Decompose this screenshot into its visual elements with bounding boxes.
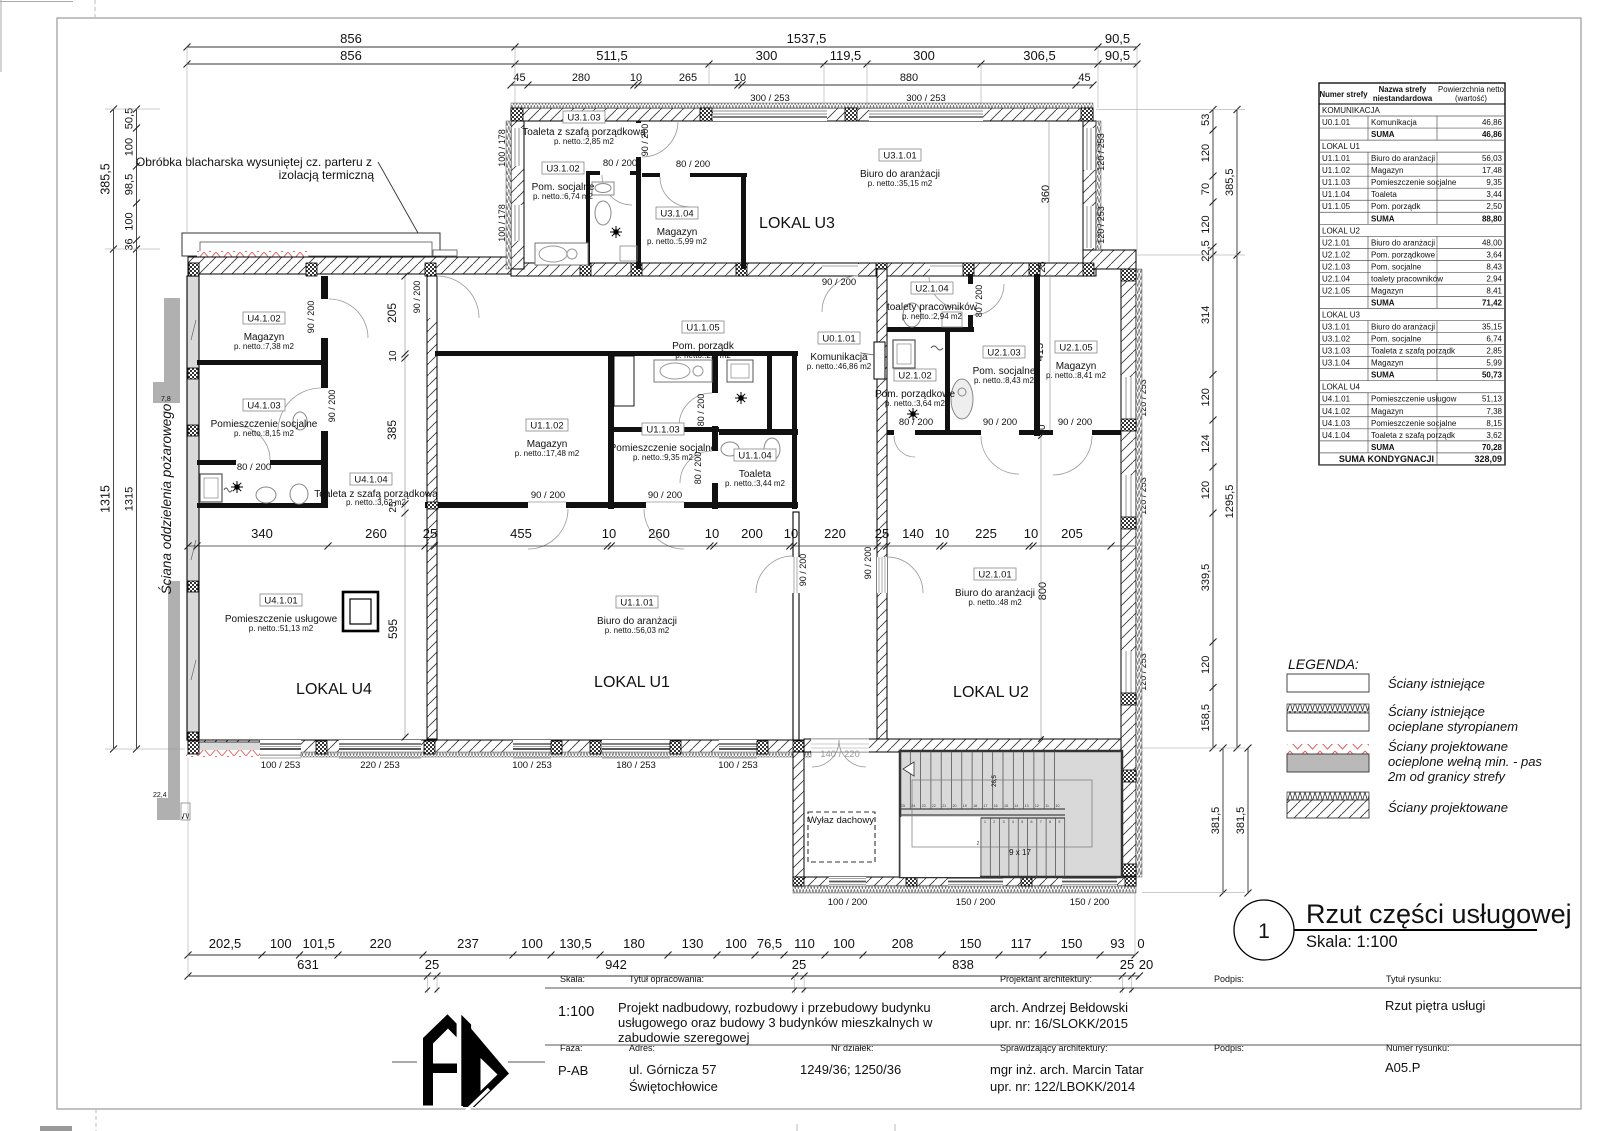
svg-text:119,5: 119,5 [830, 48, 862, 63]
svg-text:SUMA KONDYGNACJI: SUMA KONDYGNACJI [1339, 454, 1434, 464]
svg-text:90 / 200: 90 / 200 [983, 417, 1017, 428]
svg-text:306,5: 306,5 [1023, 48, 1056, 63]
svg-text:511,5: 511,5 [596, 48, 628, 63]
svg-text:25: 25 [875, 526, 889, 541]
svg-text:150 / 200: 150 / 200 [1070, 897, 1110, 908]
svg-text:1315: 1315 [124, 487, 136, 511]
svg-text:381,5: 381,5 [1235, 807, 1247, 835]
svg-text:U3.1.03: U3.1.03 [567, 113, 600, 124]
svg-text:22: 22 [932, 804, 936, 808]
svg-text:46,86: 46,86 [1482, 130, 1503, 139]
svg-text:6: 6 [1031, 820, 1033, 824]
svg-text:Nr działek:: Nr działek: [831, 1043, 874, 1053]
svg-text:140 / 220: 140 / 220 [820, 749, 860, 760]
svg-text:1249/36; 1250/36: 1249/36; 1250/36 [800, 1062, 901, 1077]
svg-text:10: 10 [630, 72, 642, 84]
svg-text:120: 120 [1200, 144, 1212, 162]
svg-text:p. netto.:48 m2: p. netto.:48 m2 [968, 598, 1022, 607]
svg-text:toalety pracowników: toalety pracowników [1371, 274, 1443, 283]
svg-text:90 / 200: 90 / 200 [306, 301, 316, 334]
svg-text:Podpis:: Podpis: [1214, 1043, 1244, 1053]
svg-text:15: 15 [1004, 804, 1008, 808]
svg-text:265: 265 [679, 72, 697, 84]
svg-text:20: 20 [1139, 957, 1153, 972]
svg-text:158,5: 158,5 [1200, 704, 1212, 732]
svg-text:U2.1.04: U2.1.04 [915, 284, 948, 295]
svg-text:3: 3 [1003, 820, 1005, 824]
svg-text:381,5: 381,5 [1210, 807, 1222, 835]
svg-text:p. netto.:2,5 m2: p. netto.:2,5 m2 [675, 351, 731, 360]
svg-text:U1.1.01: U1.1.01 [620, 598, 653, 609]
svg-text:Pom. porządk: Pom. porządk [1371, 202, 1421, 211]
svg-text:U2.1.01: U2.1.01 [1322, 238, 1351, 247]
svg-text:Pomieszczenie usługow: Pomieszczenie usługow [1371, 395, 1457, 404]
svg-text:U4.1.04: U4.1.04 [1322, 431, 1351, 440]
svg-text:3,64: 3,64 [1486, 250, 1502, 259]
svg-text:Projekt nadbudowy, rozbudowy i: Projekt nadbudowy, rozbudowy i przebudow… [618, 1000, 931, 1015]
svg-text:120: 120 [1200, 481, 1212, 499]
svg-text:U2.1.03: U2.1.03 [987, 348, 1020, 359]
svg-text:71,42: 71,42 [1482, 298, 1503, 307]
svg-text:2: 2 [993, 820, 995, 824]
svg-text:9,35: 9,35 [1486, 178, 1502, 187]
svg-text:3,62: 3,62 [1486, 431, 1502, 440]
svg-text:KOMUNIKACJA: KOMUNIKACJA [1322, 106, 1380, 115]
svg-text:360: 360 [1040, 185, 1052, 203]
svg-text:SUMA: SUMA [1371, 443, 1395, 452]
svg-text:p. netto.:3,44 m2: p. netto.:3,44 m2 [725, 479, 786, 488]
svg-text:25: 25 [1037, 261, 1048, 273]
svg-text:200: 200 [741, 526, 763, 541]
svg-text:856: 856 [340, 31, 362, 46]
svg-text:U1.1.02: U1.1.02 [530, 421, 563, 432]
svg-text:25: 25 [1120, 957, 1134, 972]
svg-text:U3.1.01: U3.1.01 [883, 151, 916, 162]
svg-text:U1.1.04: U1.1.04 [738, 451, 771, 462]
svg-text:208: 208 [892, 936, 914, 951]
svg-text:90 / 200: 90 / 200 [648, 490, 682, 501]
svg-text:385: 385 [385, 420, 399, 440]
svg-text:100 / 253: 100 / 253 [512, 760, 552, 771]
svg-text:205: 205 [385, 303, 399, 323]
svg-text:10: 10 [734, 72, 746, 84]
svg-text:220: 220 [824, 526, 846, 541]
svg-text:838: 838 [952, 957, 974, 972]
svg-text:90 / 200: 90 / 200 [531, 490, 565, 501]
svg-text:Magazyn: Magazyn [1371, 166, 1403, 175]
svg-text:U4.1.02: U4.1.02 [1322, 407, 1351, 416]
svg-text:9: 9 [1058, 820, 1060, 824]
svg-text:856: 856 [340, 48, 362, 63]
svg-text:Biuro do aranżacji: Biuro do aranżacji [1371, 154, 1435, 163]
svg-text:2: 2 [977, 841, 980, 847]
svg-text:7,8: 7,8 [161, 396, 171, 403]
svg-text:80 / 200: 80 / 200 [237, 462, 271, 473]
svg-text:90 / 200: 90 / 200 [412, 281, 422, 314]
svg-text:(wartość): (wartość) [1455, 94, 1487, 103]
svg-text:100: 100 [124, 138, 136, 156]
svg-text:10: 10 [388, 350, 399, 362]
svg-text:U3.1.02: U3.1.02 [546, 164, 579, 175]
svg-text:80 / 200: 80 / 200 [974, 285, 984, 318]
svg-text:300 / 253: 300 / 253 [750, 93, 790, 104]
svg-text:22,5: 22,5 [1200, 240, 1212, 261]
svg-text:70,28: 70,28 [1482, 443, 1503, 452]
svg-text:120: 120 [1200, 656, 1212, 674]
svg-text:117: 117 [1011, 936, 1032, 951]
svg-text:p. netto.:9,35 m2: p. netto.:9,35 m2 [633, 453, 694, 462]
svg-text:2,50: 2,50 [1486, 202, 1502, 211]
svg-text:46,86: 46,86 [1482, 118, 1503, 127]
svg-text:U2.1.03: U2.1.03 [1322, 262, 1351, 271]
svg-text:80 / 200: 80 / 200 [899, 417, 933, 428]
svg-text:21: 21 [942, 804, 946, 808]
svg-text:U3.1.01: U3.1.01 [1322, 323, 1351, 332]
svg-text:12: 12 [1035, 804, 1039, 808]
svg-text:LOKAL U2: LOKAL U2 [1322, 226, 1360, 235]
svg-text:10: 10 [935, 526, 949, 541]
svg-text:U1.1.04: U1.1.04 [1322, 190, 1351, 199]
svg-text:Biuro do aranżacji: Biuro do aranżacji [1371, 238, 1435, 247]
svg-text:U4.1.01: U4.1.01 [264, 596, 297, 607]
svg-text:usługowego oraz budowy 3 budyn: usługowego oraz budowy 3 budynków mieszk… [618, 1015, 933, 1030]
svg-text:U0.1.01: U0.1.01 [822, 334, 855, 345]
svg-text:100: 100 [270, 936, 292, 951]
svg-text:595: 595 [386, 619, 400, 639]
svg-text:Powierzchnia netto: Powierzchnia netto [1438, 85, 1505, 94]
svg-text:10: 10 [602, 526, 616, 541]
svg-text:Faza:: Faza: [560, 1043, 583, 1053]
svg-text:p. netto.:51,13 m2: p. netto.:51,13 m2 [249, 624, 314, 633]
svg-text:1: 1 [984, 820, 986, 824]
svg-text:180 / 253: 180 / 253 [616, 760, 656, 771]
svg-text:arch. Andrzej Bełdowski: arch. Andrzej Bełdowski [990, 1000, 1128, 1015]
svg-text:LOKAL U3: LOKAL U3 [759, 215, 835, 232]
svg-text:19: 19 [963, 804, 967, 808]
svg-text:300: 300 [913, 48, 935, 63]
svg-text:1:100: 1:100 [558, 1004, 594, 1020]
svg-text:90,5: 90,5 [1105, 48, 1130, 63]
svg-text:150 / 200: 150 / 200 [956, 897, 996, 908]
svg-text:Skala: 1:100: Skala: 1:100 [1306, 933, 1398, 951]
svg-text:Pom. socjalne: Pom. socjalne [1371, 262, 1422, 271]
svg-text:339,5: 339,5 [1200, 564, 1212, 592]
svg-text:Magazyn: Magazyn [1371, 407, 1403, 416]
svg-text:p. netto.:35,15 m2: p. netto.:35,15 m2 [868, 179, 933, 188]
svg-text:415: 415 [1034, 343, 1046, 361]
svg-text:U3.1.04: U3.1.04 [1322, 359, 1351, 368]
svg-text:25: 25 [792, 957, 806, 972]
svg-text:2,94: 2,94 [1486, 274, 1502, 283]
svg-text:70: 70 [1200, 183, 1212, 195]
svg-text:p. netto.:2,94 m2: p. netto.:2,94 m2 [902, 312, 963, 321]
svg-text:120: 120 [1200, 215, 1212, 233]
svg-text:8,41: 8,41 [1486, 286, 1502, 295]
svg-text:150: 150 [1061, 936, 1083, 951]
svg-text:100: 100 [833, 936, 855, 951]
svg-text:upr. nr: 16/SLOKK/2015: upr. nr: 16/SLOKK/2015 [990, 1016, 1128, 1031]
svg-text:U2.1.02: U2.1.02 [898, 371, 931, 382]
svg-text:202,5: 202,5 [209, 936, 242, 951]
svg-text:Świętochłowice: Świętochłowice [629, 1079, 718, 1094]
svg-text:Biuro do aranżacji: Biuro do aranżacji [1371, 323, 1435, 332]
svg-text:100 / 253: 100 / 253 [718, 760, 758, 771]
svg-text:10: 10 [1056, 804, 1060, 808]
svg-text:80 / 200: 80 / 200 [676, 159, 710, 170]
svg-text:220 / 253: 220 / 253 [360, 760, 400, 771]
svg-text:8: 8 [1049, 820, 1051, 824]
svg-text:17,48: 17,48 [1482, 166, 1503, 175]
svg-text:ul. Górnicza 57: ul. Górnicza 57 [629, 1062, 716, 1077]
svg-text:35,15: 35,15 [1482, 323, 1503, 332]
svg-text:p. netto.:17,48 m2: p. netto.:17,48 m2 [515, 449, 580, 458]
svg-text:p. netto.:2,85 m2: p. netto.:2,85 m2 [554, 137, 615, 146]
svg-text:Numer strefy: Numer strefy [1319, 90, 1368, 99]
svg-text:upr. nr: 122/LBOKK/2014: upr. nr: 122/LBOKK/2014 [990, 1079, 1135, 1094]
svg-text:Tytuł opracowania:: Tytuł opracowania: [629, 974, 704, 984]
svg-text:90 / 200: 90 / 200 [327, 390, 337, 423]
svg-text:A05.P: A05.P [1385, 1060, 1420, 1075]
svg-text:6,74: 6,74 [1486, 335, 1502, 344]
svg-text:5,99: 5,99 [1486, 359, 1502, 368]
svg-text:16: 16 [994, 804, 998, 808]
svg-text:120: 120 [1200, 388, 1212, 406]
svg-text:Numer rysunku:: Numer rysunku: [1386, 1043, 1450, 1053]
svg-text:U3.1.04: U3.1.04 [660, 209, 693, 220]
svg-text:SUMA: SUMA [1371, 214, 1395, 223]
svg-text:90 / 200: 90 / 200 [1058, 417, 1092, 428]
svg-text:56,03: 56,03 [1482, 154, 1503, 163]
svg-text:ocieplone wełną min. - pas: ocieplone wełną min. - pas [1388, 754, 1542, 769]
svg-text:14: 14 [1014, 804, 1018, 808]
svg-text:2m od granicy strefy: 2m od granicy strefy [1387, 769, 1507, 784]
svg-text:p. netto.:8,43 m2: p. netto.:8,43 m2 [974, 376, 1035, 385]
svg-text:U2.1.05: U2.1.05 [1059, 343, 1092, 354]
svg-text:Pom. socjalne: Pom. socjalne [1371, 335, 1422, 344]
svg-text:180: 180 [623, 936, 645, 951]
svg-text:Rzut części usługowej: Rzut części usługowej [1306, 899, 1572, 929]
svg-text:100: 100 [725, 936, 747, 951]
svg-text:LOKAL U1: LOKAL U1 [1322, 142, 1360, 151]
svg-text:10: 10 [1024, 526, 1038, 541]
svg-text:328,09: 328,09 [1474, 454, 1502, 464]
svg-text:Toaleta: Toaleta [1371, 190, 1397, 199]
svg-text:Toaleta z szafą porządk: Toaleta z szafą porządk [1371, 347, 1456, 356]
svg-text:Projektant architektury:: Projektant architektury: [1000, 974, 1092, 984]
svg-text:U2.1.05: U2.1.05 [1322, 286, 1351, 295]
svg-text:U4.1.04: U4.1.04 [354, 475, 387, 486]
svg-text:SUMA: SUMA [1371, 298, 1395, 307]
svg-text:Rzut piętra usługi: Rzut piętra usługi [1385, 998, 1486, 1013]
svg-text:100 / 178: 100 / 178 [497, 204, 507, 242]
svg-text:U2.1.04: U2.1.04 [1322, 274, 1351, 283]
svg-text:LOKAL U3: LOKAL U3 [1322, 311, 1360, 320]
svg-text:120 / 253: 120 / 253 [1096, 133, 1106, 171]
svg-text:U4.1.03: U4.1.03 [247, 401, 280, 412]
svg-text:7: 7 [1040, 820, 1042, 824]
svg-text:1295,5: 1295,5 [1224, 485, 1236, 519]
svg-text:11: 11 [1045, 804, 1049, 808]
svg-text:1315: 1315 [99, 485, 113, 513]
svg-text:90 / 200: 90 / 200 [863, 547, 873, 580]
svg-text:Komunikacja: Komunikacja [1371, 118, 1417, 127]
svg-text:385,5: 385,5 [99, 163, 113, 194]
svg-text:U1.1.01: U1.1.01 [1322, 154, 1351, 163]
svg-text:220: 220 [370, 936, 392, 951]
svg-text:LOKAL U1: LOKAL U1 [594, 674, 670, 691]
svg-text:20: 20 [953, 804, 957, 808]
svg-text:mgr inż. arch. Marcin Tatar: mgr inż. arch. Marcin Tatar [990, 1062, 1144, 1077]
svg-text:340: 340 [251, 526, 273, 541]
svg-text:LOKAL U4: LOKAL U4 [296, 681, 372, 698]
svg-text:U2.1.02: U2.1.02 [1322, 250, 1351, 259]
svg-text:U1.1.03: U1.1.03 [646, 425, 679, 436]
svg-text:101,5: 101,5 [302, 936, 335, 951]
svg-text:Wyłaz dachowy: Wyłaz dachowy [808, 815, 874, 826]
svg-text:Ściany istniejące: Ściany istniejące [1388, 704, 1485, 719]
svg-text:U3.1.02: U3.1.02 [1322, 335, 1351, 344]
svg-text:17: 17 [983, 804, 987, 808]
svg-text:23: 23 [922, 804, 926, 808]
svg-text:50,73: 50,73 [1482, 371, 1503, 380]
svg-text:80 / 200: 80 / 200 [693, 452, 703, 485]
svg-text:93: 93 [1110, 936, 1124, 951]
svg-text:130: 130 [682, 936, 704, 951]
svg-text:P-AB: P-AB [558, 1063, 588, 1078]
svg-text:SUMA: SUMA [1371, 130, 1395, 139]
svg-text:110: 110 [794, 936, 815, 951]
svg-text:48,00: 48,00 [1482, 238, 1503, 247]
svg-text:Ściany projektowane: Ściany projektowane [1388, 800, 1508, 815]
svg-text:300: 300 [756, 48, 778, 63]
svg-text:U4.1.02: U4.1.02 [247, 314, 280, 325]
svg-text:10: 10 [784, 526, 798, 541]
svg-text:942: 942 [605, 957, 627, 972]
svg-text:U3.1.03: U3.1.03 [1322, 347, 1351, 356]
svg-text:p. netto.:8,15 m2: p. netto.:8,15 m2 [234, 429, 295, 438]
svg-text:98,5: 98,5 [124, 174, 136, 195]
svg-text:300 / 253: 300 / 253 [906, 93, 946, 104]
svg-text:50,5: 50,5 [124, 108, 136, 129]
svg-text:237: 237 [457, 936, 479, 951]
svg-text:U4.1.03: U4.1.03 [1322, 419, 1351, 428]
svg-text:LOKAL U2: LOKAL U2 [953, 684, 1029, 701]
svg-text:5: 5 [1021, 820, 1023, 824]
svg-text:205: 205 [1061, 526, 1083, 541]
svg-text:90 / 200: 90 / 200 [798, 554, 808, 587]
svg-text:800: 800 [1037, 582, 1049, 600]
svg-text:80 / 200: 80 / 200 [696, 394, 706, 427]
svg-text:p. netto.:6,74 m2: p. netto.:6,74 m2 [533, 192, 594, 201]
svg-text:53: 53 [1200, 114, 1212, 126]
svg-text:280: 280 [572, 72, 590, 84]
svg-text:10: 10 [705, 526, 719, 541]
svg-text:U1.1.03: U1.1.03 [1322, 178, 1351, 187]
svg-text:150: 150 [960, 936, 982, 951]
svg-text:p. netto.:46,86 m2: p. netto.:46,86 m2 [807, 362, 872, 371]
svg-text:8,15: 8,15 [1486, 419, 1502, 428]
svg-text:Pomieszczenie socjalne: Pomieszczenie socjalne [1371, 419, 1457, 428]
svg-text:p. netto.:56,03 m2: p. netto.:56,03 m2 [605, 626, 670, 635]
svg-text:100 / 253: 100 / 253 [261, 760, 301, 771]
svg-text:88,80: 88,80 [1482, 214, 1503, 223]
svg-text:120 / 253: 120 / 253 [1096, 206, 1106, 244]
svg-text:ocieplane styropianem: ocieplane styropianem [1388, 719, 1518, 734]
svg-text:Pomieszczenie socjalne: Pomieszczenie socjalne [1371, 178, 1457, 187]
svg-text:2,85: 2,85 [1486, 347, 1502, 356]
svg-text:p. netto.:5,99 m2: p. netto.:5,99 m2 [647, 237, 708, 246]
svg-text:100 / 200: 100 / 200 [828, 897, 868, 908]
svg-text:80 / 200: 80 / 200 [603, 158, 637, 169]
svg-text:Ściana oddzielenia pożarowego: Ściana oddzielenia pożarowego [159, 403, 174, 594]
svg-text:25: 25 [425, 957, 439, 972]
svg-text:Podpis:: Podpis: [1214, 974, 1244, 984]
svg-text:880: 880 [900, 72, 918, 84]
svg-text:Obróbka blacharska wysuniętej: Obróbka blacharska wysuniętej cz. parter… [136, 155, 372, 169]
svg-text:90 / 200: 90 / 200 [822, 277, 856, 288]
svg-text:100: 100 [521, 936, 543, 951]
svg-text:100 / 178: 100 / 178 [497, 129, 507, 167]
svg-text:SUMA: SUMA [1371, 371, 1395, 380]
svg-text:U4.1.01: U4.1.01 [1322, 395, 1351, 404]
svg-text:385,5: 385,5 [1224, 168, 1236, 196]
svg-text:U1.1.02: U1.1.02 [1322, 166, 1351, 175]
svg-text:niestandardowa: niestandardowa [1373, 94, 1433, 103]
svg-text:45: 45 [1078, 72, 1090, 84]
svg-text:Tytuł rysunku:: Tytuł rysunku: [1386, 974, 1442, 984]
svg-text:7,38: 7,38 [1486, 407, 1502, 416]
svg-text:76,5: 76,5 [757, 936, 782, 951]
svg-text:U1.1.05: U1.1.05 [1322, 202, 1351, 211]
svg-text:455: 455 [510, 526, 532, 541]
svg-text:U0.1.01: U0.1.01 [1322, 118, 1351, 127]
svg-text:4: 4 [1012, 820, 1014, 824]
svg-text:1: 1 [1258, 920, 1270, 943]
svg-text:Nazwa strefy: Nazwa strefy [1379, 85, 1427, 94]
svg-text:225: 225 [975, 526, 997, 541]
svg-text:260: 260 [365, 526, 387, 541]
svg-text:Adres:: Adres: [629, 1043, 655, 1053]
svg-text:24: 24 [911, 804, 915, 808]
svg-text:Skala:: Skala: [560, 974, 585, 984]
svg-text:51,13: 51,13 [1482, 395, 1503, 404]
svg-text:0: 0 [1137, 936, 1144, 951]
svg-text:18: 18 [973, 804, 977, 808]
svg-text:LEGENDA:: LEGENDA: [1288, 656, 1359, 672]
svg-text:p. netto.:8,41 m2: p. netto.:8,41 m2 [1046, 371, 1107, 380]
svg-text:LOKAL U4: LOKAL U4 [1322, 383, 1360, 392]
svg-text:Toaleta z szafą porządk: Toaleta z szafą porządk [1371, 431, 1456, 440]
svg-text:U2.1.01: U2.1.01 [978, 570, 1011, 581]
svg-text:Magazyn: Magazyn [1371, 286, 1403, 295]
svg-text:90,5: 90,5 [1105, 31, 1130, 46]
svg-text:314: 314 [1200, 306, 1212, 324]
svg-text:25: 25 [901, 804, 905, 808]
svg-text:260: 260 [648, 526, 670, 541]
svg-text:631: 631 [297, 957, 319, 972]
svg-text:Magazyn: Magazyn [1371, 359, 1403, 368]
svg-text:Pom. porządkowe: Pom. porządkowe [1371, 250, 1436, 259]
svg-text:p. netto.:3,64 m2: p. netto.:3,64 m2 [885, 399, 946, 408]
svg-text:1537,5: 1537,5 [787, 31, 827, 46]
svg-text:8,43: 8,43 [1486, 262, 1502, 271]
svg-text:130,5: 130,5 [559, 936, 592, 951]
svg-text:140: 140 [902, 526, 924, 541]
svg-text:U1.1.05: U1.1.05 [686, 323, 719, 334]
svg-text:26,5: 26,5 [992, 775, 998, 787]
svg-text:Ściany istniejące: Ściany istniejące [1388, 676, 1485, 691]
svg-text:3,44: 3,44 [1486, 190, 1502, 199]
